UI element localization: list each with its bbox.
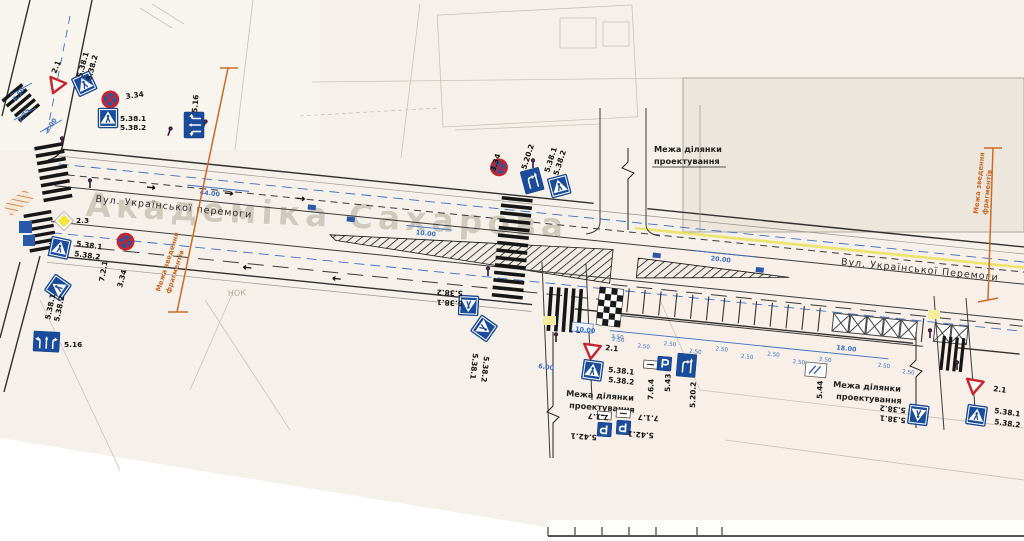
curb-highlight-1 <box>543 316 556 325</box>
svg-text:5.42.1: 5.42.1 <box>627 429 654 440</box>
svg-text:2.1: 2.1 <box>605 343 619 353</box>
parking-zone-sign-icon <box>597 422 612 437</box>
road-design-plan: НОК Академіка Сахарова <box>0 0 1024 541</box>
parking-end-sign-icon <box>805 362 827 378</box>
curb-highlight-2 <box>928 310 940 319</box>
lane-direction-sign-icon <box>33 331 60 352</box>
mini-sign-stack-1 <box>19 221 32 233</box>
svg-text:Межа ділянки: Межа ділянки <box>654 144 722 154</box>
pedestrian-crossing-sign-icon <box>965 404 988 427</box>
pedestrian-crossing-sign-icon <box>48 236 72 260</box>
svg-text:5.42.1: 5.42.1 <box>570 431 597 442</box>
lane-start-sign-icon <box>676 353 697 378</box>
pedestrian-crossing-sign-icon <box>98 108 118 128</box>
svg-text:5.20.2: 5.20.2 <box>688 382 698 408</box>
svg-text:5.44: 5.44 <box>815 381 825 400</box>
design-boundary-top: Межа ділянки проектування <box>652 144 726 167</box>
pedestrian-crossing-sign-icon <box>581 359 604 382</box>
svg-text:2.3: 2.3 <box>76 216 89 225</box>
plate-764-icon <box>643 360 658 369</box>
plate-717-icon <box>616 409 631 418</box>
svg-text:5.16: 5.16 <box>190 94 201 113</box>
svg-text:5.38.2: 5.38.2 <box>120 123 146 132</box>
pedestrian-crossing-sign-icon <box>907 404 929 426</box>
svg-text:7.1.7: 7.1.7 <box>638 413 660 423</box>
svg-text:5.38.1: 5.38.1 <box>120 114 146 123</box>
no-stopping-sign-icon <box>101 91 119 109</box>
svg-text:5.16: 5.16 <box>64 340 82 349</box>
svg-text:проектування: проектування <box>654 156 720 166</box>
checker-island <box>596 287 624 327</box>
svg-text:5.43: 5.43 <box>663 374 673 393</box>
mini-sign-stack-2 <box>23 235 35 246</box>
svg-text:7.1.7: 7.1.7 <box>588 412 610 422</box>
parking-sign-icon <box>657 356 672 371</box>
svg-text:2.1: 2.1 <box>993 384 1007 395</box>
basemap-label-nok: НОК <box>228 288 247 298</box>
svg-text:7.6.4: 7.6.4 <box>646 379 656 400</box>
lane-direction-sign-icon <box>184 112 204 138</box>
svg-text:5.38.1: 5.38.1 <box>436 298 463 308</box>
plan-drawing-canvas: НОК Академіка Сахарова <box>0 0 1024 541</box>
svg-text:5.38.2: 5.38.2 <box>436 288 463 298</box>
